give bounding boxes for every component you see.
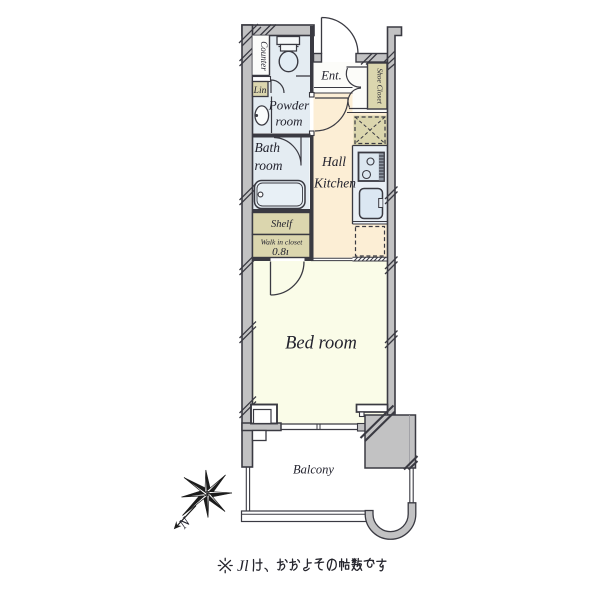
svg-text:Lin: Lin [253,86,267,96]
svg-text:room: room [255,158,283,173]
svg-text:Jl: Jl [237,558,249,575]
svg-text:room: room [276,114,303,129]
svg-text:Counter: Counter [259,41,269,71]
svg-text:Powder: Powder [268,98,310,113]
svg-text:Ent.: Ent. [320,69,341,83]
svg-text:Balcony: Balcony [293,463,334,477]
svg-text:Shelf: Shelf [271,219,294,230]
svg-text:Bath: Bath [255,140,281,155]
svg-text:Kitchen: Kitchen [313,176,356,191]
svg-text:Bed room: Bed room [285,334,357,354]
svg-text:Shoe Closet: Shoe Closet [376,68,385,105]
svg-text:0.8ı: 0.8ı [272,246,289,258]
svg-text:Hall: Hall [321,154,346,169]
